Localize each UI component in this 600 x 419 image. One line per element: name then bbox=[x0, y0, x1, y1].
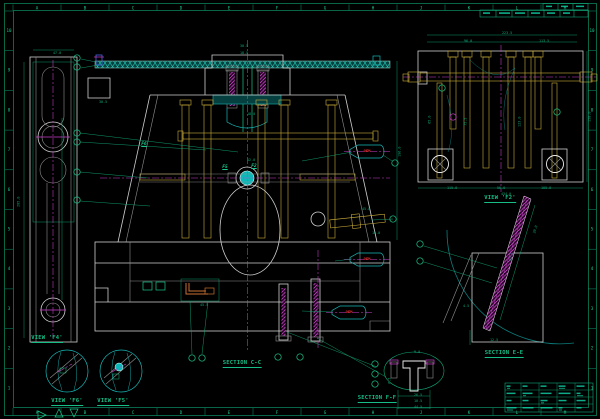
ruler-letter: F bbox=[276, 410, 279, 415]
balloon bbox=[275, 354, 281, 360]
detail-flag-f6: F6 bbox=[141, 143, 146, 148]
dim-label: 123.0 bbox=[518, 117, 521, 127]
dim-label: 30.5 bbox=[240, 45, 248, 48]
ruler-number: 6 bbox=[591, 187, 594, 192]
dim-label: 434.0 bbox=[501, 193, 511, 196]
dim-label: 223.5 bbox=[502, 32, 512, 35]
ruler-letter: G bbox=[324, 410, 327, 415]
dim-label: 16.0 bbox=[372, 232, 380, 235]
ruler-number: 1 bbox=[8, 385, 11, 390]
ruler-letter: K bbox=[468, 410, 471, 415]
dim-label: 12.5 bbox=[490, 339, 498, 342]
ruler-number: 10 bbox=[6, 28, 12, 33]
ruler-number: 9 bbox=[8, 68, 11, 73]
ruler-letter: A bbox=[36, 5, 39, 10]
callout-text: OEM bbox=[364, 257, 371, 261]
balloon bbox=[450, 114, 456, 120]
ruler-letter: C bbox=[132, 5, 135, 10]
revision-table bbox=[480, 4, 588, 18]
dim-label: 18.0 bbox=[247, 113, 255, 116]
view-f2-label: VIEW 'F2' bbox=[484, 196, 516, 203]
ruler-letter: L bbox=[516, 410, 519, 415]
view-f5-label: VIEW 'F5' bbox=[97, 399, 129, 406]
dim-label: 26.5 bbox=[414, 394, 422, 397]
view-f6-label: VIEW 'F6' bbox=[51, 399, 83, 406]
view-f4-drawing bbox=[24, 50, 77, 342]
balloon bbox=[297, 354, 303, 360]
ruler-letter: E bbox=[228, 5, 231, 10]
ruler-letter: D bbox=[180, 410, 183, 415]
ruler-number: 2 bbox=[591, 346, 594, 351]
ruler-letter: J bbox=[420, 410, 423, 415]
ruler-letter: K bbox=[468, 5, 471, 10]
leader-line bbox=[81, 59, 96, 62]
section-cc-label: SECTION C-C bbox=[223, 361, 262, 368]
ruler-number: 5 bbox=[8, 227, 11, 232]
ruler-number: 3 bbox=[591, 306, 594, 311]
detail-view-f5 bbox=[100, 350, 142, 392]
ruler-letter: L bbox=[516, 5, 519, 10]
ruler-number: 7 bbox=[8, 147, 11, 152]
dim-label: 56.0 bbox=[497, 187, 505, 190]
leader-line bbox=[80, 133, 238, 152]
detail-view-f6 bbox=[46, 350, 88, 392]
view-f2-drawing bbox=[403, 35, 597, 192]
dim-label: 30.5 bbox=[99, 101, 107, 104]
balloon bbox=[417, 241, 423, 247]
leader-line bbox=[335, 259, 352, 261]
section-ee-drawing bbox=[443, 196, 574, 345]
balloon bbox=[372, 381, 378, 387]
dim-label: 285.0 bbox=[17, 197, 20, 207]
leader-line bbox=[80, 172, 148, 178]
balloon bbox=[392, 160, 398, 166]
leader-line bbox=[302, 152, 352, 161]
dim-label: 6.5 bbox=[388, 378, 391, 384]
dim-label: 65.0 bbox=[428, 116, 431, 124]
callout-text: OEM bbox=[346, 310, 353, 314]
ruler-number: 6 bbox=[8, 187, 11, 192]
dim-label: 18.5 bbox=[240, 52, 248, 55]
detail-flag-f5: F5 bbox=[222, 166, 227, 171]
ruler-letter: H bbox=[372, 5, 375, 10]
dim-label: 105.0 bbox=[541, 187, 551, 190]
ruler-number: 5 bbox=[591, 227, 594, 232]
dim-label: 44.5 bbox=[414, 406, 422, 409]
ruler-letter: C bbox=[132, 410, 135, 415]
leader-line bbox=[424, 246, 497, 268]
dim-label: 75.5 bbox=[464, 118, 467, 126]
detail-flag-f2: F2 bbox=[251, 165, 256, 170]
dim-label: 45.0 bbox=[362, 208, 370, 211]
balloon bbox=[189, 355, 195, 361]
ruler-letter: B bbox=[84, 410, 87, 415]
ruler-number: 4 bbox=[8, 266, 11, 271]
ruler-letter: F bbox=[276, 5, 279, 10]
ruler-number: 10 bbox=[589, 28, 595, 33]
ruler-number: 3 bbox=[8, 306, 11, 311]
ruler-number: 4 bbox=[591, 266, 594, 271]
dim-label: 45.5 bbox=[200, 304, 208, 307]
leader-line bbox=[287, 332, 377, 367]
ruler-number: 2 bbox=[8, 346, 11, 351]
ruler-letter: M bbox=[564, 410, 567, 415]
leader-line bbox=[190, 301, 192, 354]
dim-label: 113.5 bbox=[539, 40, 549, 43]
ejector-pins bbox=[140, 100, 386, 238]
ruler-number: 9 bbox=[591, 68, 594, 73]
section-ee-label: SECTION E-E bbox=[485, 351, 524, 358]
cad-drawing-canvas: AABBCCDDEEFFGGHHJJKKLLMM1010998877665544… bbox=[0, 0, 600, 419]
leader-line bbox=[80, 201, 150, 206]
dim-label: 4.5 bbox=[463, 305, 469, 308]
ruler-letter: H bbox=[372, 410, 375, 415]
ruler-number: 7 bbox=[591, 147, 594, 152]
balloon bbox=[417, 258, 423, 264]
callout-text: OEM bbox=[364, 149, 371, 153]
leader-line bbox=[383, 155, 392, 161]
ruler-letter: J bbox=[420, 5, 423, 10]
dim-label: 9.0 bbox=[414, 351, 420, 354]
dim-label: 196.0 bbox=[398, 147, 401, 157]
section-cc-drawing bbox=[88, 40, 397, 350]
dim-label: 12.0 bbox=[247, 159, 255, 162]
dim-label: 158.0 bbox=[588, 112, 591, 122]
dim-label: 115.0 bbox=[447, 187, 457, 190]
ruler-number: 8 bbox=[8, 107, 11, 112]
dim-label: 96.0 bbox=[464, 40, 472, 43]
ruler-letter: D bbox=[180, 5, 183, 10]
ruler-letter: G bbox=[324, 5, 327, 10]
ruler-letter: E bbox=[228, 410, 231, 415]
ruler-letter: B bbox=[84, 5, 87, 10]
section-ff-label: SECTION F-F bbox=[358, 396, 397, 403]
dim-label: 47.0 bbox=[53, 52, 61, 55]
balloon bbox=[372, 371, 378, 377]
leader-line bbox=[202, 301, 208, 354]
balloon bbox=[199, 355, 205, 361]
view-f4-label: VIEW 'F4' bbox=[31, 336, 63, 343]
dim-label: 10.5 bbox=[414, 400, 422, 403]
